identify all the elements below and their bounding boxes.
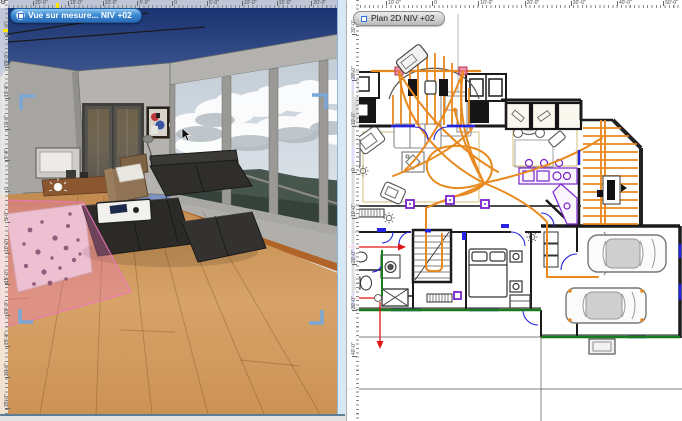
plan-2d-canvas[interactable] bbox=[347, 0, 682, 421]
ruler-tick-label: 40'-0" bbox=[617, 1, 632, 6]
garage-cars bbox=[566, 232, 666, 354]
ruler-tick-label: 20'-0" bbox=[525, 1, 540, 6]
ruler-tick-label: 20'-0" bbox=[352, 250, 357, 265]
coffee-table bbox=[96, 199, 151, 224]
ruler-tick-label: 0 bbox=[5, 187, 10, 192]
staircase bbox=[413, 230, 451, 282]
gear-icon[interactable]: ⚙ bbox=[0, 0, 6, 7]
ruler-tick-label: 0 bbox=[172, 1, 177, 6]
car bbox=[566, 288, 646, 323]
ruler-tick-label: 10'-0" bbox=[352, 112, 357, 127]
ruler-tick-label: 25'-0" bbox=[5, 332, 10, 347]
ruler-tick-label: 15'-0" bbox=[5, 270, 10, 285]
vertical-ruler-3d[interactable]: 25'-0"20'-0"15'-0"10'-0"5'-0"05'-0"10'-0… bbox=[0, 0, 8, 414]
ruler-tick-label: 5'-0" bbox=[5, 211, 10, 223]
ruler-tick-label: 20'-0" bbox=[5, 301, 10, 316]
tab-2d-plan-label: Plan 2D NIV +02 bbox=[371, 13, 435, 23]
ruler-tick-label: 5'-0" bbox=[207, 1, 219, 6]
ruler-tick-label: 10'-0" bbox=[103, 1, 118, 6]
dining-cabinets bbox=[506, 103, 581, 129]
bedroom-furniture bbox=[469, 232, 558, 308]
car bbox=[588, 232, 666, 275]
3d-view-icon bbox=[16, 11, 25, 20]
view-3d-canvas[interactable] bbox=[0, 0, 345, 414]
ruler-tick-label: 15'-0" bbox=[5, 84, 10, 99]
horizontal-ruler-2d[interactable]: 10'-0"010'-0"20'-0"30'-0"40'-0"50'-0" bbox=[347, 0, 682, 8]
ruler-tick-label: 10'-0" bbox=[478, 1, 493, 6]
ruler-tick-label: 10'-0" bbox=[352, 204, 357, 219]
vertical-scrollbar[interactable] bbox=[337, 0, 345, 414]
ruler-tick-label: 10'-0" bbox=[5, 115, 10, 130]
ruler-tick-label: 30'-0" bbox=[5, 363, 10, 378]
vertical-ruler-2d[interactable]: 30'-0"20'-0"10'-0"010'-0"20'-0"30'-0"40'… bbox=[347, 0, 359, 421]
ruler-tick-label: 20'-0" bbox=[5, 53, 10, 68]
ruler-tick-label: 40'-0" bbox=[352, 342, 357, 357]
ruler-tick-label: 10'-0" bbox=[5, 239, 10, 254]
wall-painting bbox=[147, 107, 169, 138]
ruler-position-marker bbox=[3, 29, 8, 32]
ruler-tick-label: 50'-0" bbox=[663, 1, 678, 6]
tab-3d-view-label: Vue sur mesure... NIV +02 bbox=[28, 10, 132, 20]
ruler-tick-label: 5'-0" bbox=[5, 149, 10, 161]
ruler-tick-label: 10'-0" bbox=[242, 1, 257, 6]
window-2d-plan: 10'-0"010'-0"20'-0"30'-0"40'-0"50'-0" 30… bbox=[346, 0, 682, 421]
ruler-tick-label: 20'-0" bbox=[311, 1, 326, 6]
ruler-tick-label: 20'-0" bbox=[352, 66, 357, 81]
tab-3d-view[interactable]: Vue sur mesure... NIV +02 bbox=[10, 8, 142, 23]
kitchen bbox=[519, 160, 577, 225]
horizontal-ruler-3d[interactable]: 20'-0"15'-0"10'-0"5'-0"05'-0"10'-0"15'-0… bbox=[0, 0, 345, 8]
ruler-tick-label: 30'-0" bbox=[571, 1, 586, 6]
ruler-tick-label: 20'-0" bbox=[33, 1, 48, 6]
ruler-tick-label: 0 bbox=[352, 168, 357, 173]
window-3d-view: 20'-0"15'-0"10'-0"5'-0"05'-0"10'-0"15'-0… bbox=[0, 0, 345, 416]
ruler-tick-label: 10'-0" bbox=[386, 1, 401, 6]
app-workspace: 20'-0"15'-0"10'-0"5'-0"05'-0"10'-0"15'-0… bbox=[0, 0, 682, 421]
ruler-tick-label: 15'-0" bbox=[68, 1, 83, 6]
plan-2d-icon bbox=[359, 14, 368, 23]
ruler-tick-label: 30'-0" bbox=[352, 296, 357, 311]
ruler-tick-label: 35'-0" bbox=[5, 394, 10, 409]
ruler-tick-label: 0 bbox=[432, 1, 437, 6]
cable-junction bbox=[453, 108, 457, 112]
ruler-tick-label: 5'-0" bbox=[137, 1, 149, 6]
ruler-tick-label: 15'-0" bbox=[277, 1, 292, 6]
light-symbol bbox=[383, 212, 394, 223]
tab-2d-plan[interactable]: Plan 2D NIV +02 bbox=[353, 11, 445, 26]
